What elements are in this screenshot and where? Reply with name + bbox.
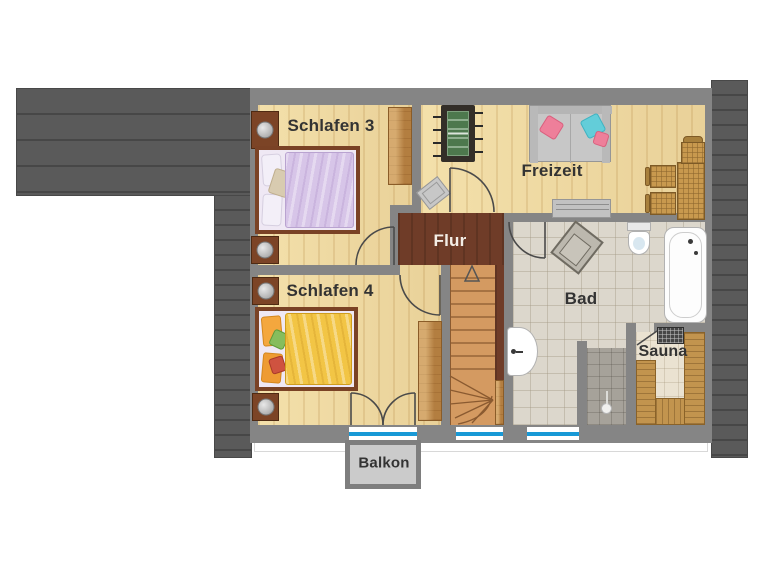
nightstand <box>251 111 279 149</box>
desk-chair <box>681 142 705 164</box>
lower-floor-outline <box>254 443 708 452</box>
label-sauna: Sauna <box>638 343 687 361</box>
sofa-armrest <box>530 106 538 163</box>
wall-shower-left <box>577 341 587 425</box>
balcony-door-glass <box>349 432 417 436</box>
roof-strip-left <box>214 195 252 458</box>
chair <box>650 165 676 188</box>
floor-plan: Schlafen 3 Freizeit Flur Schlafen 4 Bad … <box>0 0 768 576</box>
nightstand <box>252 393 279 421</box>
lamp-icon <box>257 242 274 259</box>
lamp-icon <box>257 283 274 300</box>
window-glass <box>456 432 503 436</box>
wall-schlafen3-schlafen4 <box>250 265 400 275</box>
pillow <box>261 193 283 226</box>
roof-strip-right <box>711 80 748 458</box>
wall-flur-top <box>390 205 421 213</box>
wardrobe <box>418 321 442 421</box>
balcony-door-sill <box>349 427 417 440</box>
sauna-bench <box>636 360 656 425</box>
sofa-seam <box>570 114 571 163</box>
nightstand <box>252 277 279 305</box>
wall-bad-left <box>504 213 513 425</box>
window-bad <box>527 427 579 440</box>
desk <box>677 162 705 220</box>
drain-icon <box>694 251 698 255</box>
chair <box>650 192 676 215</box>
bathtub <box>664 227 707 323</box>
foosball-rods <box>433 105 483 162</box>
lamp-icon <box>257 399 274 416</box>
sauna-heater-icon <box>657 327 684 344</box>
faucet-icon <box>688 239 693 244</box>
shower-head-icon <box>601 403 612 414</box>
nightstand <box>251 236 279 264</box>
sauna-bench <box>655 398 687 425</box>
sideboard <box>552 199 611 218</box>
lamp-icon <box>257 122 274 139</box>
roof-dormer-left <box>16 88 252 196</box>
wall-stairwell-left <box>441 265 450 425</box>
sofa <box>529 105 611 162</box>
wardrobe <box>388 107 412 185</box>
shower-head-stem <box>606 391 608 404</box>
window-glass <box>527 432 579 436</box>
bed-schlafen4 <box>255 307 358 391</box>
blanket <box>285 152 354 228</box>
sofa-cushion-pink <box>538 114 564 140</box>
stairwell-side-shelf <box>495 380 504 425</box>
label-schlafen3: Schlafen 3 <box>287 116 374 136</box>
toilet <box>627 222 651 256</box>
label-balkon: Balkon <box>358 455 409 472</box>
blanket <box>285 313 352 385</box>
window-stairwell <box>456 427 503 440</box>
label-schlafen4: Schlafen 4 <box>286 281 373 301</box>
wall-flur-left <box>390 213 398 265</box>
label-flur: Flur <box>434 231 467 251</box>
wall-shower-sauna <box>626 323 636 425</box>
sofa-backrest <box>530 106 612 114</box>
bed-schlafen3 <box>255 146 360 234</box>
label-freizeit: Freizeit <box>521 161 582 181</box>
label-bad: Bad <box>565 289 598 309</box>
stairwell-floor <box>450 265 495 425</box>
